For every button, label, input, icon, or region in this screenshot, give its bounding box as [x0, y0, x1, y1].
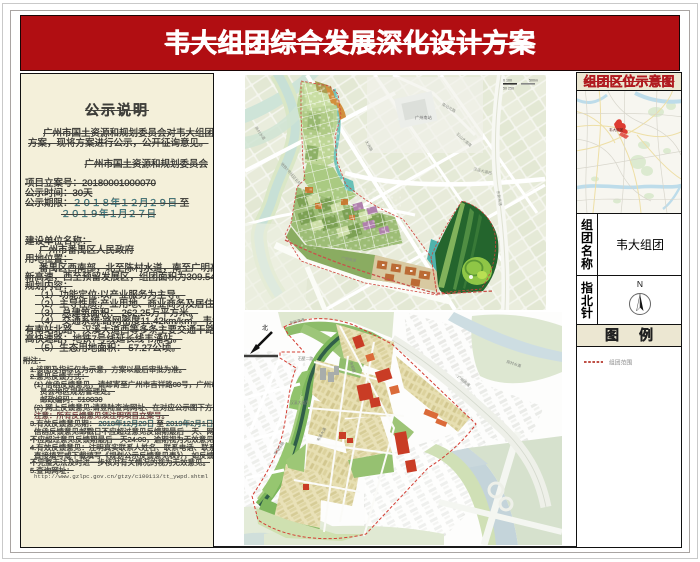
svg-text:广州南站: 广州南站 — [415, 114, 432, 121]
svg-text:汉溪大道西: 汉溪大道西 — [290, 400, 309, 405]
svg-text:组团范围: 组团范围 — [609, 359, 632, 367]
svg-text:N: N — [637, 279, 643, 289]
svg-text:石壁二路: 石壁二路 — [298, 356, 313, 361]
svg-text:50 250: 50 250 — [503, 87, 514, 91]
svg-text:北: 北 — [262, 324, 268, 332]
svg-text:500m: 500m — [529, 79, 538, 83]
svg-text:0 100: 0 100 — [503, 79, 512, 83]
svg-text:韦大组团: 韦大组团 — [609, 127, 624, 132]
